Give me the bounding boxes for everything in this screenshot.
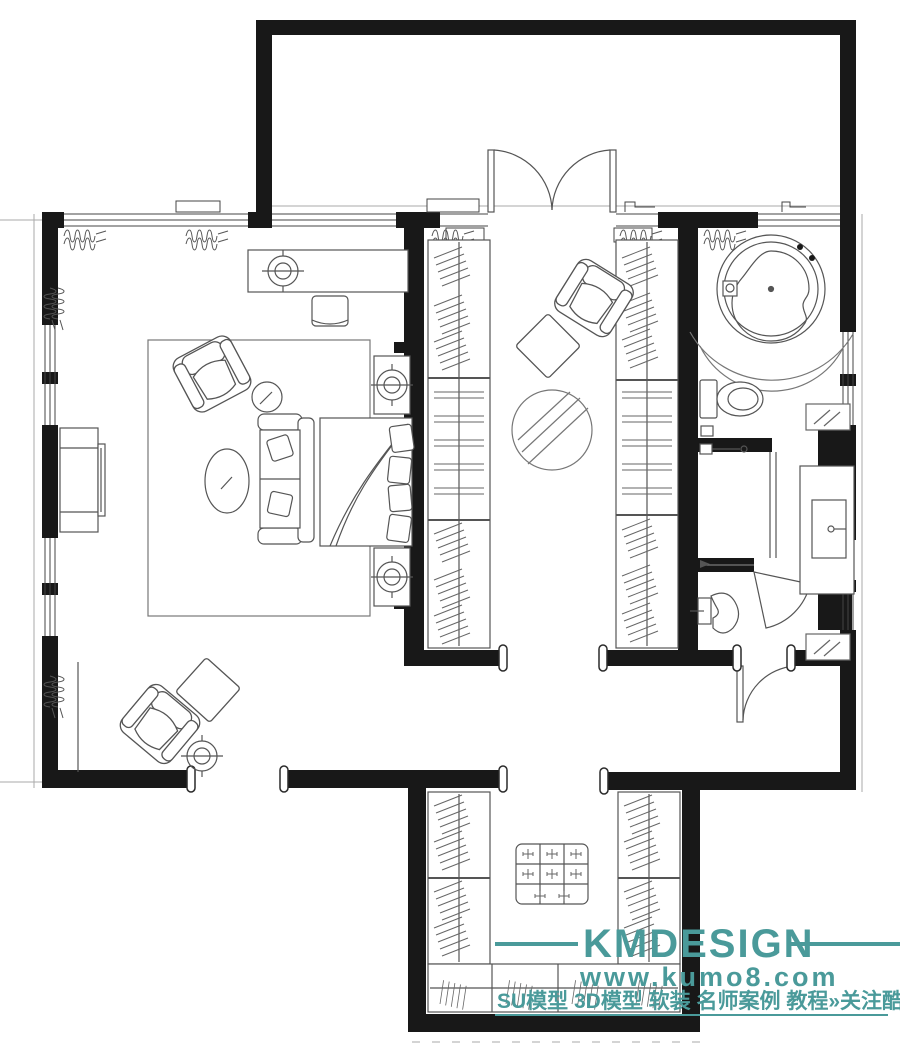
watermark-website: www.kumo8.com xyxy=(579,962,839,992)
wardrobe-left xyxy=(428,240,490,648)
watermark-tagline: SU模型 3D模型 软装 名师案例 教程»关注酷模吧 xyxy=(497,989,900,1013)
round-bathtub xyxy=(690,235,853,391)
radiator-symbol xyxy=(64,230,106,250)
nightstand xyxy=(371,356,413,414)
watermark-brand: KMDESIGN xyxy=(583,922,815,966)
double-bed xyxy=(320,418,414,546)
round-side-table xyxy=(252,382,282,412)
room-bedroom xyxy=(44,230,414,777)
round-rug xyxy=(512,390,592,470)
floor-plan-canvas: KMDESIGN www.kumo8.com SU模型 3D模型 软装 名师案例… xyxy=(0,0,900,1047)
entry-double-door xyxy=(488,150,616,212)
tv xyxy=(98,444,105,516)
ottoman xyxy=(515,313,580,378)
nightstand xyxy=(371,548,413,606)
room-walk-in-closet xyxy=(428,230,678,648)
desk-stool xyxy=(312,296,348,326)
center-island xyxy=(516,844,588,904)
toilet xyxy=(700,380,763,436)
armchair xyxy=(170,332,255,415)
bathroom-door xyxy=(733,645,795,722)
wardrobe-left xyxy=(428,792,490,964)
radiator-symbol xyxy=(186,230,228,250)
loveseat-sofa xyxy=(258,414,314,544)
tv-cabinet xyxy=(60,428,98,532)
vanity-sink xyxy=(800,466,854,594)
oval-pouf xyxy=(205,449,249,513)
floor-plan-page: KMDESIGN www.kumo8.com SU模型 3D模型 软装 名师案例… xyxy=(0,0,900,1047)
dressing-table xyxy=(248,250,408,292)
